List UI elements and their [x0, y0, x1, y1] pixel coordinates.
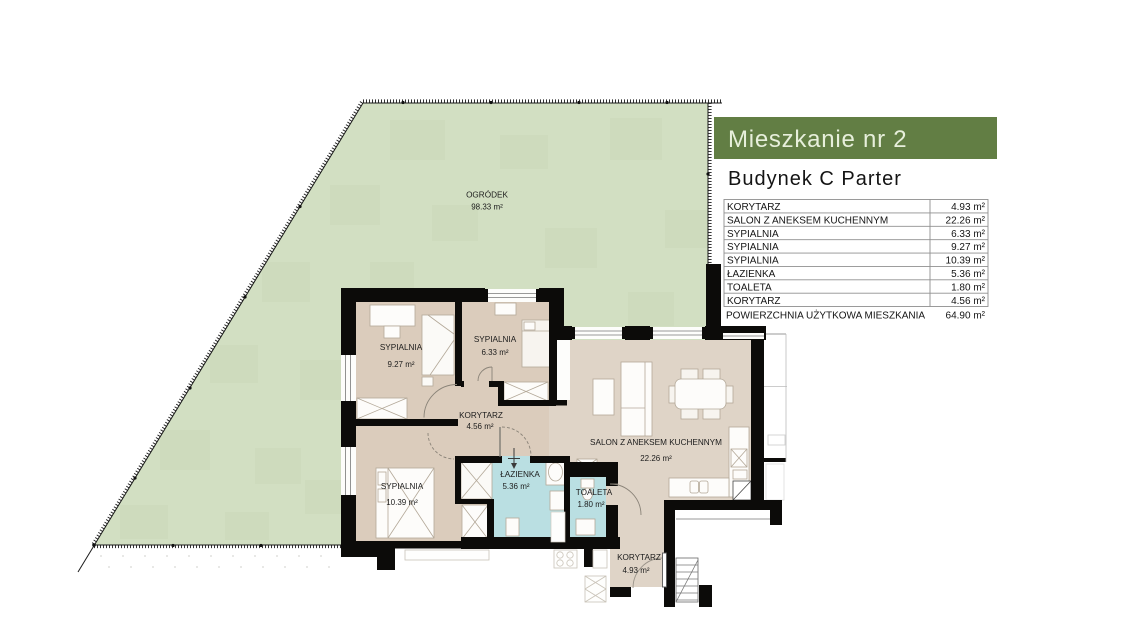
svg-text:TOALETA: TOALETA	[727, 282, 772, 293]
svg-text:Budynek C Parter: Budynek C Parter	[728, 168, 902, 190]
svg-text:22.26 m²: 22.26 m²	[946, 215, 986, 226]
svg-text:TOALETA: TOALETA	[576, 488, 613, 497]
svg-text:22.26 m²: 22.26 m²	[640, 454, 672, 463]
svg-text:KORYTARZ: KORYTARZ	[727, 202, 781, 213]
svg-text:SYPIALNIA: SYPIALNIA	[727, 229, 779, 240]
svg-text:1.80 m²: 1.80 m²	[577, 500, 604, 509]
svg-text:SYPIALNIA: SYPIALNIA	[474, 335, 517, 344]
svg-text:5.36 m²: 5.36 m²	[951, 269, 986, 280]
svg-text:9.27 m²: 9.27 m²	[951, 242, 986, 253]
svg-text:SYPIALNIA: SYPIALNIA	[727, 242, 779, 253]
svg-text:4.93 m²: 4.93 m²	[622, 566, 649, 575]
svg-text:POWIERZCHNIA UŻYTKOWA MIESZKAN: POWIERZCHNIA UŻYTKOWA MIESZKANIA	[726, 309, 925, 322]
svg-text:5.36 m²: 5.36 m²	[502, 482, 529, 491]
svg-text:OGRÓDEK: OGRÓDEK	[466, 190, 508, 200]
svg-text:SYPIALNIA: SYPIALNIA	[381, 482, 424, 491]
svg-text:6.33 m²: 6.33 m²	[951, 229, 986, 240]
svg-text:4.56 m²: 4.56 m²	[466, 422, 493, 431]
svg-text:4.56 m²: 4.56 m²	[951, 296, 986, 307]
svg-text:Mieszkanie nr 2: Mieszkanie nr 2	[728, 126, 907, 153]
svg-text:6.33 m²: 6.33 m²	[481, 348, 508, 357]
svg-text:KORYTARZ: KORYTARZ	[727, 296, 781, 307]
svg-text:10.39 m²: 10.39 m²	[946, 256, 986, 267]
svg-text:KORYTARZ: KORYTARZ	[459, 411, 503, 420]
svg-text:SYPIALNIA: SYPIALNIA	[727, 256, 779, 267]
svg-text:SALON Z ANEKSEM KUCHENNYM: SALON Z ANEKSEM KUCHENNYM	[727, 215, 888, 226]
svg-text:10.39 m²: 10.39 m²	[386, 498, 418, 507]
svg-text:ŁAZIENKA: ŁAZIENKA	[500, 470, 540, 479]
svg-text:SYPIALNIA: SYPIALNIA	[380, 343, 423, 352]
svg-text:1.80 m²: 1.80 m²	[951, 282, 986, 293]
svg-text:KORYTARZ: KORYTARZ	[617, 553, 661, 562]
svg-text:ŁAZIENKA: ŁAZIENKA	[727, 269, 776, 280]
svg-text:SALON Z ANEKSEM KUCHENNYM: SALON Z ANEKSEM KUCHENNYM	[590, 438, 722, 447]
svg-text:9.27 m²: 9.27 m²	[387, 360, 414, 369]
svg-text:98.33 m²: 98.33 m²	[471, 203, 503, 212]
svg-text:4.93 m²: 4.93 m²	[951, 202, 986, 213]
svg-text:64.90 m²: 64.90 m²	[946, 311, 986, 322]
